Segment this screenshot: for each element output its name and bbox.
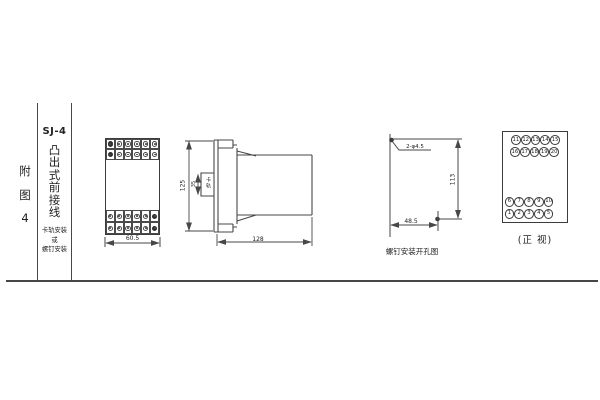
- terminal-number: 14: [540, 135, 550, 145]
- terminal-row-16-20: 1617181920: [510, 147, 559, 157]
- drill-horizontal-dimension: 48.5: [396, 218, 426, 225]
- terminal-number: 10: [544, 197, 554, 207]
- mounting-hole-top: [389, 138, 394, 143]
- terminal-number: 13: [531, 135, 541, 145]
- terminal-number: 8: [524, 197, 534, 207]
- terminal-number: 3: [524, 209, 534, 219]
- terminal-number: 1: [505, 209, 515, 219]
- terminal-number: 19: [539, 147, 549, 157]
- terminal-number: 6: [505, 197, 515, 207]
- terminal-row-1-5: 12345: [505, 209, 554, 219]
- terminal-number: 16: [510, 147, 520, 157]
- side-depth-dimension: 128: [240, 236, 276, 243]
- front-width-dimension: 60.5: [105, 235, 160, 242]
- terminal-row-11-15: 1112131415: [511, 135, 560, 145]
- figure-page: 附 图 4 SJ-4 凸 出 式 前 接 线 卡轨安装 或 螺钉安装: [0, 0, 600, 400]
- terminal-number: 7: [514, 197, 524, 207]
- terminal-number: 11: [511, 135, 521, 145]
- terminal-number: 15: [550, 135, 560, 145]
- side-height-dimension: 125: [180, 171, 187, 201]
- terminal-number: 9: [534, 197, 544, 207]
- terminal-number: 17: [520, 147, 530, 157]
- terminal-number: 5: [544, 209, 554, 219]
- rail-gap-dimension: 35: [191, 174, 197, 194]
- terminal-number: 12: [521, 135, 531, 145]
- hole-spec-label: 2-φ4.5: [399, 144, 431, 150]
- terminal-number: 18: [530, 147, 540, 157]
- terminal-row-6-10: 678910: [505, 197, 554, 207]
- rail-label: 卡轨: [205, 177, 212, 189]
- terminal-number: 2: [514, 209, 524, 219]
- drill-view-caption: 螺钉安装开孔图: [368, 246, 456, 257]
- terminal-number: 4: [534, 209, 544, 219]
- drill-vertical-dimension: 113: [450, 165, 457, 195]
- side-view-dimension-lines: [185, 141, 312, 246]
- side-view-geometry: [201, 140, 312, 232]
- terminal-number: 20: [549, 147, 559, 157]
- terminal-view-caption: (正 视): [495, 232, 575, 246]
